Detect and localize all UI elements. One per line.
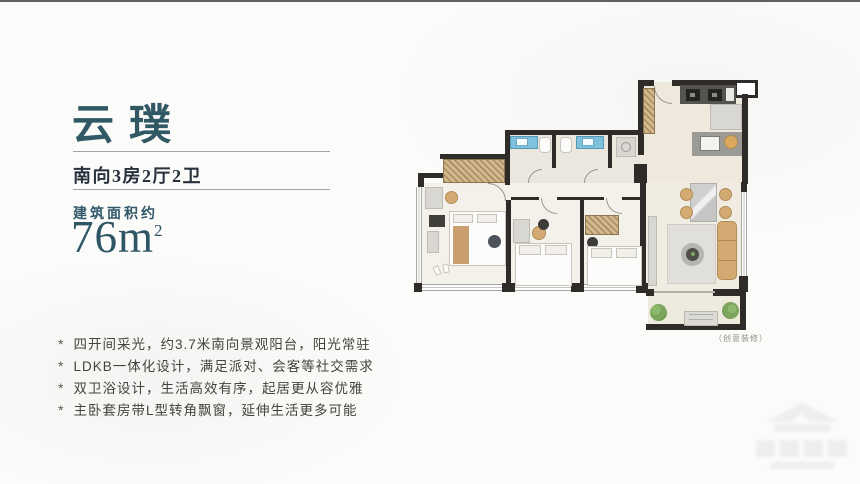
dining-chair	[719, 188, 732, 201]
bedroom3-wardrobe	[585, 215, 619, 235]
wall	[608, 135, 612, 168]
area-unit: m	[118, 212, 154, 262]
house-logo-base	[774, 424, 830, 432]
top-border-line	[0, 0, 860, 2]
wall	[580, 197, 584, 285]
master-desk	[425, 187, 443, 209]
pillow	[591, 248, 612, 258]
bath2-basin	[582, 138, 594, 146]
wall	[742, 94, 748, 184]
dining-chair	[719, 206, 732, 219]
master-side-table	[427, 231, 439, 253]
feature-list: *四开间采光，约3.7米南向景观阳台，阳光常驻 *LDKB一体化设计，满足派对、…	[58, 333, 374, 421]
wall	[506, 200, 511, 285]
master-desk-chair	[445, 191, 458, 204]
pillow	[545, 245, 567, 255]
sofa-cushion-line	[718, 240, 736, 241]
pillow	[453, 214, 473, 223]
wall	[646, 289, 654, 296]
master-bed-throw	[488, 235, 501, 248]
table-plant	[691, 252, 695, 256]
burner-knob	[690, 93, 695, 97]
master-bay-window	[422, 284, 502, 291]
master-side-window	[416, 187, 422, 283]
slipper	[442, 264, 449, 274]
wall	[741, 182, 747, 192]
fruit-basket	[724, 135, 738, 149]
bedroom2-desk	[513, 219, 530, 243]
pillow	[477, 214, 497, 223]
wall	[740, 292, 746, 328]
floorplan-drawing: （创意装修）	[410, 80, 770, 348]
wall	[571, 283, 584, 292]
watermark	[748, 402, 856, 480]
bullet-icon: *	[58, 336, 64, 352]
watermark-glyph	[804, 440, 823, 457]
feature-text: 主卧套房带L型转角飘窗，延伸生活更多可能	[73, 403, 357, 418]
divider-line-1	[73, 151, 330, 152]
master-wardrobe	[443, 159, 505, 183]
master-bed-runner	[453, 226, 469, 264]
tv-console	[648, 216, 657, 286]
wall	[713, 289, 742, 296]
sofa-cushion-line	[718, 260, 736, 261]
feature-text: LDKB一体化设计，满足派对、会客等社交需求	[73, 359, 373, 374]
wall	[502, 283, 515, 292]
counter-end	[726, 88, 734, 101]
watermark-glyph	[756, 440, 775, 457]
watermark-glyph	[828, 440, 847, 457]
master-nightstand	[429, 215, 445, 227]
washer-drum	[621, 142, 631, 152]
area-value: 76m2	[71, 214, 163, 261]
dining-table	[690, 183, 717, 222]
area-number: 76	[71, 212, 118, 262]
living-room-window	[741, 192, 747, 276]
watermark-subtext	[770, 462, 834, 469]
feature-item: *四开间采光，约3.7米南向景观阳台，阳光常驻	[58, 333, 374, 355]
wall	[418, 173, 424, 187]
floorplan-slide: 云璞 南向3房2厅2卫 建筑面积约 76m2 *四开间采光，约3.7米南向景观阳…	[0, 0, 860, 484]
wall	[511, 197, 539, 200]
balcony-plant	[650, 304, 667, 321]
bench-slat	[689, 319, 713, 320]
entry-cabinet	[643, 88, 655, 134]
balcony-sliding-door	[654, 291, 715, 293]
burner-knob	[712, 93, 717, 97]
kitchen-cabinet	[710, 104, 742, 130]
feature-item: *主卧套房带L型转角飘窗，延伸生活更多可能	[58, 399, 374, 421]
wall	[414, 283, 422, 292]
bullet-icon: *	[58, 380, 64, 396]
kitchen-sink	[700, 136, 720, 151]
bedroom2-hat	[538, 219, 549, 230]
divider-line-2	[73, 189, 330, 190]
wall	[622, 197, 640, 200]
feature-text: 双卫浴设计，生活高效有序，起居更从容优雅	[73, 381, 363, 396]
watermark-glyph	[780, 440, 799, 457]
wall	[552, 135, 556, 168]
feature-item: *双卫浴设计，生活高效有序，起居更从容优雅	[58, 377, 374, 399]
bullet-icon: *	[58, 402, 64, 418]
wall	[557, 197, 580, 200]
bullet-icon: *	[58, 358, 64, 374]
feature-text: 四开间采光，约3.7米南向景观阳台，阳光常驻	[73, 337, 370, 352]
pillow	[519, 245, 541, 255]
sofa	[717, 221, 737, 280]
balcony-plant	[722, 302, 739, 319]
wall	[634, 164, 647, 183]
wall	[638, 135, 644, 155]
dining-chair	[680, 206, 693, 219]
bath2-toilet	[560, 137, 572, 153]
bench-slat	[689, 314, 713, 315]
dining-chair	[680, 188, 693, 201]
plan-caption: （创意装修）	[706, 333, 768, 344]
wall	[584, 197, 604, 200]
area-exponent: 2	[154, 221, 163, 240]
bath1-basin	[516, 138, 528, 146]
page-title: 云璞	[72, 104, 186, 148]
bath1-toilet	[539, 137, 551, 153]
layout-subtitle: 南向3房2厅2卫	[73, 162, 202, 188]
feature-item: *LDKB一体化设计，满足派对、会客等社交需求	[58, 355, 374, 377]
wall	[507, 130, 644, 135]
pillow	[616, 248, 637, 258]
